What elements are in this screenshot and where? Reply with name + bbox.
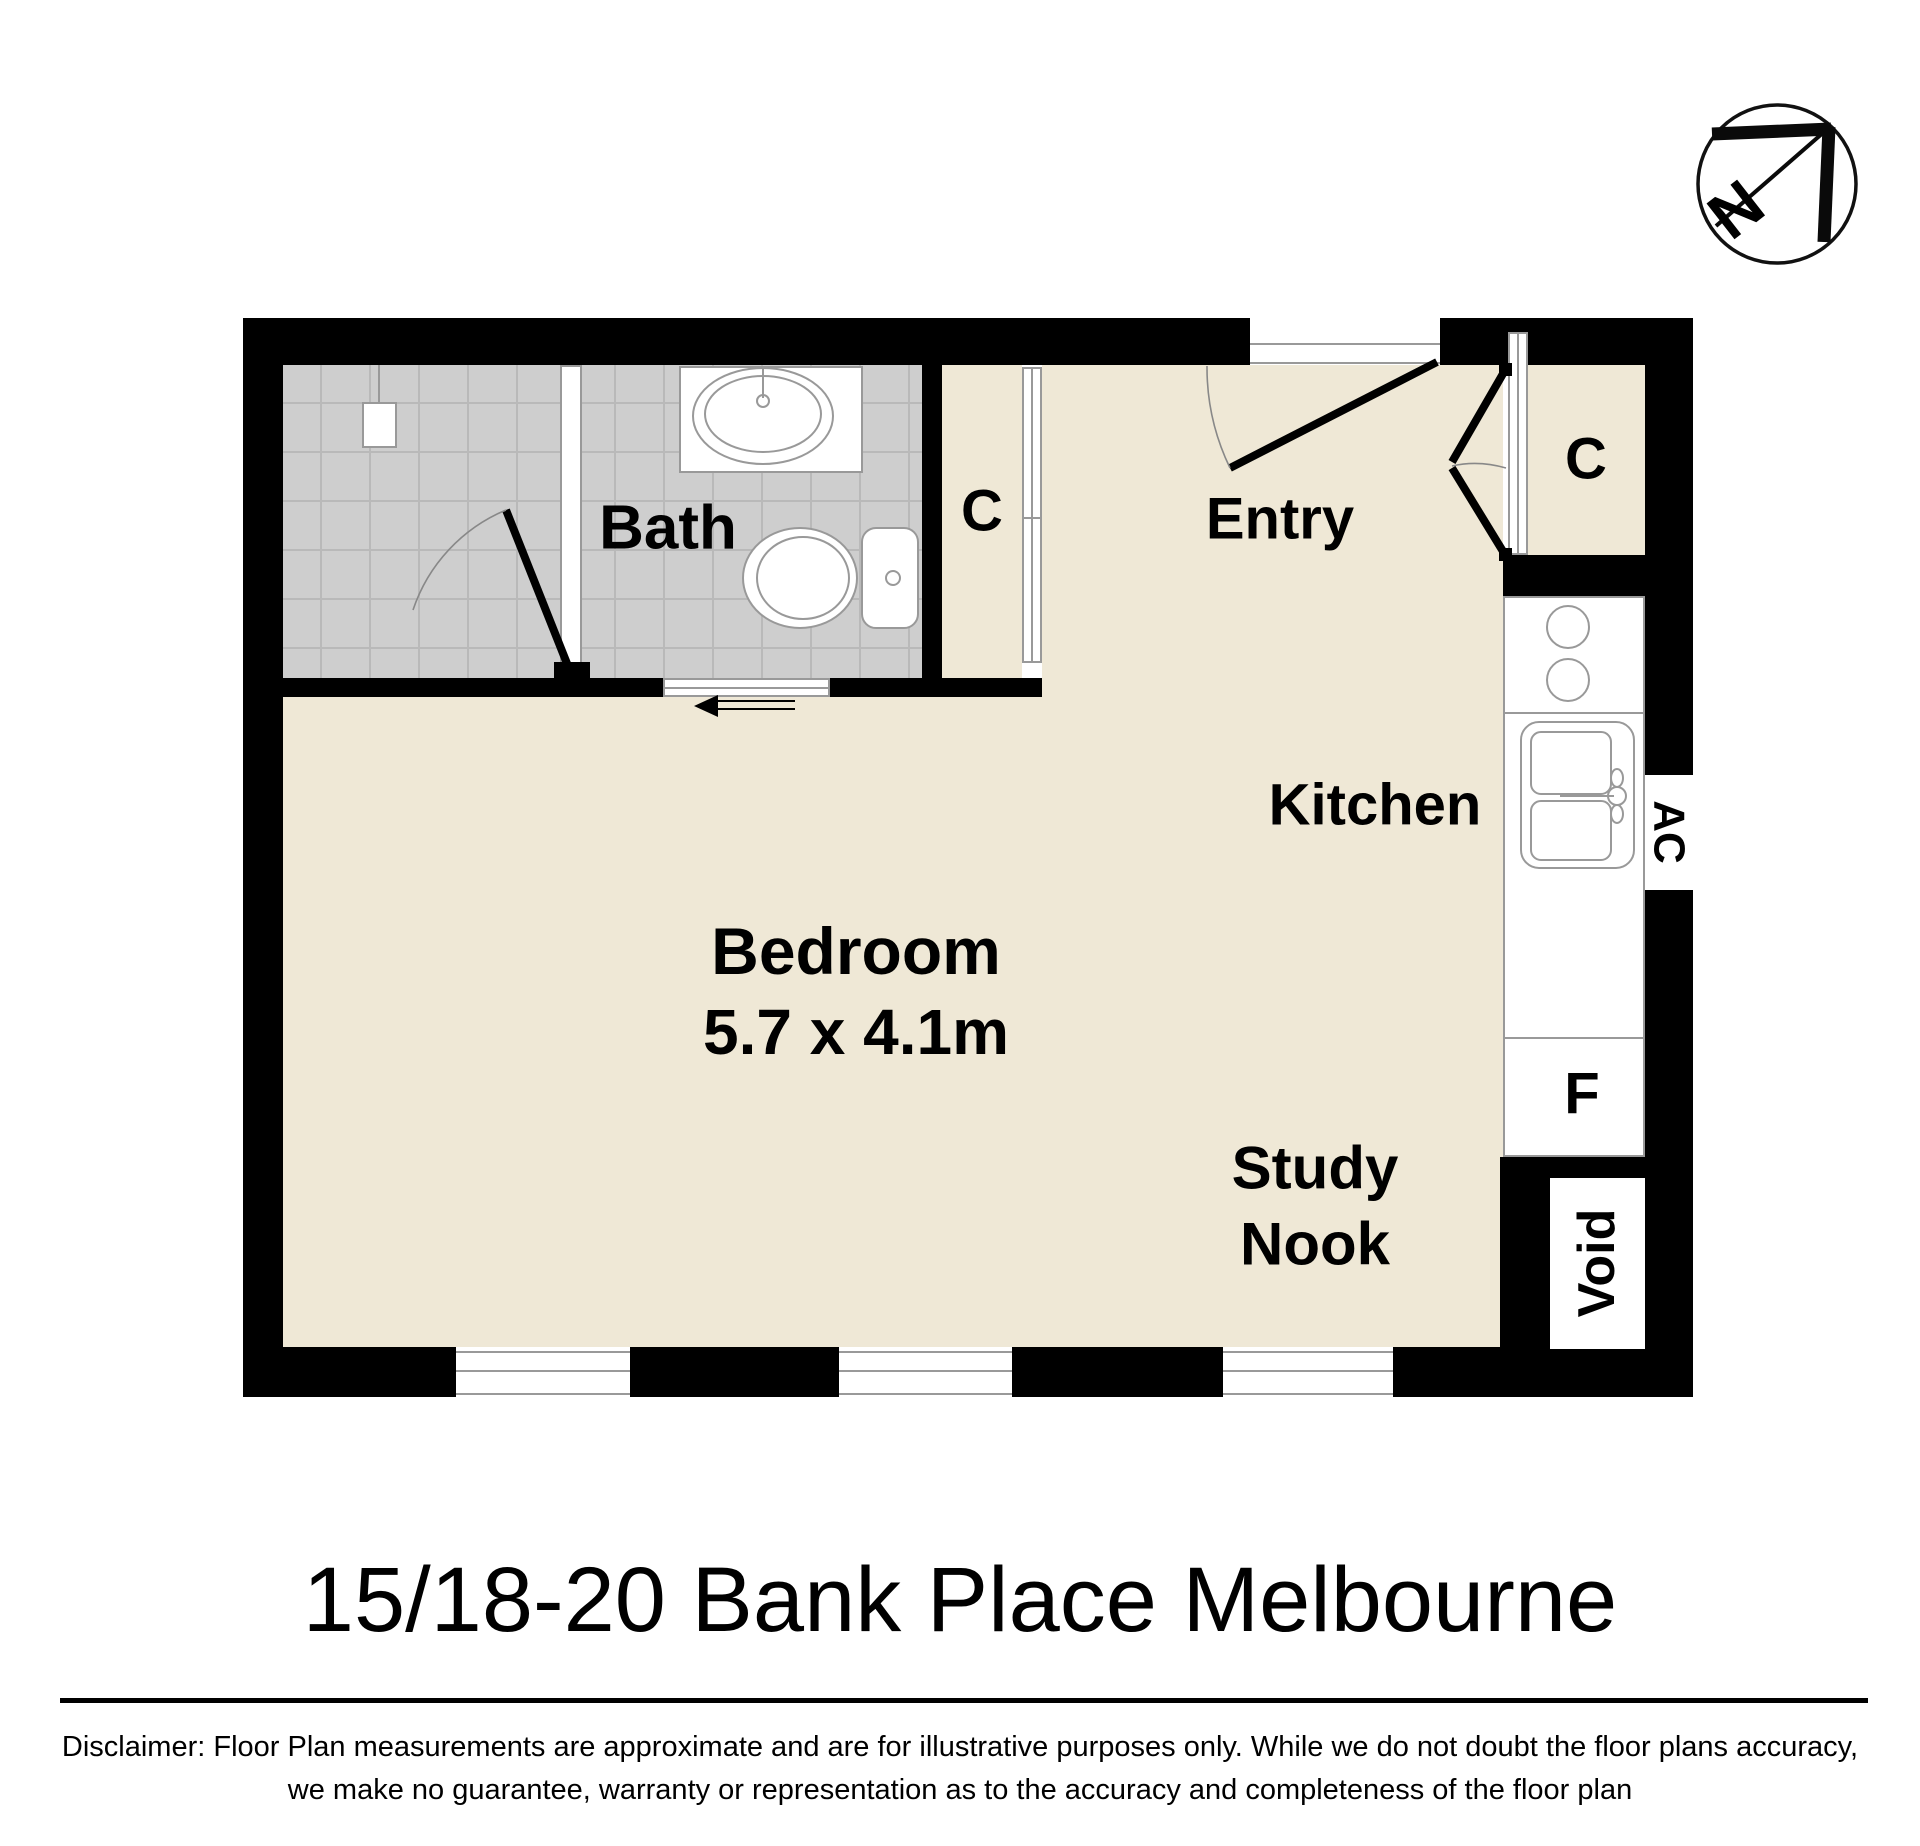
bedroom-dims-label: 5.7 x 4.1m	[703, 997, 1009, 1069]
study-nook-label-line1: Study	[1232, 1134, 1399, 1201]
closet-bifold-bottom-icon	[1452, 468, 1504, 553]
toilet-bowl-icon	[743, 528, 857, 628]
entry-door-arc-icon	[1207, 366, 1230, 468]
toilet-tank-icon	[862, 528, 918, 628]
plan-title: 15/18-20 Bank Place Melbourne	[0, 1548, 1920, 1653]
disclaimer-text: Disclaimer: Floor Plan measurements are …	[0, 1726, 1920, 1812]
closet-bifold-top-icon	[1452, 372, 1504, 462]
bath-door-arc-icon	[413, 510, 506, 610]
closet-bifold-arc-icon	[1452, 463, 1506, 468]
bedroom-label: Bedroom	[711, 915, 1001, 989]
cooktop-burner-2-icon	[1547, 659, 1589, 701]
study-nook-label-line2: Nook	[1240, 1210, 1390, 1277]
bath-label: Bath	[599, 493, 737, 562]
cooktop-burner-1-icon	[1547, 606, 1589, 648]
bath-door-leaf-icon	[506, 510, 568, 666]
shower-head-icon	[363, 403, 396, 447]
disclaimer-line2: we make no guarantee, warranty or repres…	[0, 1769, 1920, 1812]
ac-label: AC	[1644, 800, 1693, 864]
closet-entry-label: C	[1565, 428, 1607, 493]
entry-label: Entry	[1206, 488, 1354, 553]
kitchen-label: Kitchen	[1269, 774, 1482, 839]
closet-bath-label: C	[961, 480, 1003, 545]
slide-arrow-icon	[694, 695, 718, 717]
divider-rule	[60, 1698, 1868, 1703]
north-compass-icon: N	[1694, 105, 1856, 263]
disclaimer-line1: Disclaimer: Floor Plan measurements are …	[0, 1726, 1920, 1769]
fridge-label: F	[1564, 1063, 1599, 1128]
entry-door-leaf-icon	[1230, 362, 1437, 468]
void-label: Void	[1568, 1209, 1626, 1318]
floor-plan-page: N Bath C Entry C Kitchen Bedroom 5.7 x 4…	[0, 0, 1920, 1846]
